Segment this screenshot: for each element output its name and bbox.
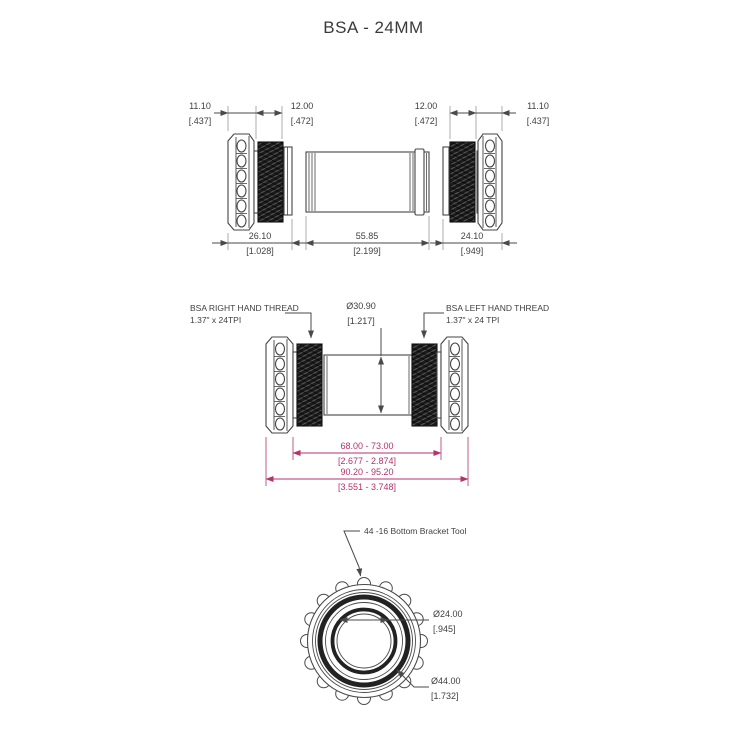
dim-mm: Ø44.00	[431, 676, 481, 686]
top-view-right-cup	[443, 134, 502, 230]
drawing-sheet: BSA - 24MM 11.10 [.437] 12.00 [.472] 12.…	[0, 0, 747, 746]
dim-mm: 26.10	[238, 231, 282, 241]
thread-label-line2: 1.37" x 24TPI	[190, 314, 330, 326]
dim-in: [1.732]	[431, 691, 481, 701]
dim-in: [2.677 - 2.874]	[322, 456, 412, 466]
dim-flange-width-right: 11.10 [.437]	[516, 101, 560, 126]
drawing-title: BSA - 24MM	[0, 18, 747, 38]
dim-mm: Ø24.00	[433, 609, 483, 619]
dim-in: [1.217]	[339, 316, 383, 326]
middle-view-assembly	[266, 337, 468, 433]
dim-in: [.945]	[433, 624, 483, 634]
dim-bore-diameter: Ø24.00 [.945]	[433, 609, 483, 634]
dim-outer-diameter: Ø44.00 [1.732]	[431, 676, 481, 701]
dim-mm: Ø30.90	[339, 301, 383, 311]
dim-sleeve-diameter: Ø30.90 [1.217]	[339, 301, 383, 326]
dim-overall-width-range: 90.20 - 95.20 [3.551 - 3.748]	[322, 467, 412, 492]
dim-in: [.472]	[280, 116, 324, 126]
dim-mm: 11.10	[178, 101, 222, 111]
dim-right-cup-length: 24.10 [.949]	[450, 231, 494, 256]
dim-in: [2.199]	[345, 246, 389, 256]
dim-in: [.437]	[516, 116, 560, 126]
dim-in: [1.028]	[238, 246, 282, 256]
dim-mm: 90.20 - 95.20	[322, 467, 412, 477]
dim-mm: 24.10	[450, 231, 494, 241]
dim-mm: 12.00	[280, 101, 324, 111]
dim-in: [.437]	[178, 116, 222, 126]
dim-sleeve-length: 55.85 [2.199]	[345, 231, 389, 256]
bottom-bracket-tool-label: 44 -16 Bottom Bracket Tool	[364, 525, 514, 537]
dim-in: [3.551 - 3.748]	[322, 482, 412, 492]
technical-drawing	[0, 0, 747, 746]
thread-label-line1: BSA RIGHT HAND THREAD	[190, 302, 330, 314]
right-hand-thread-label: BSA RIGHT HAND THREAD 1.37" x 24TPI	[190, 302, 330, 326]
dim-mm: 68.00 - 73.00	[322, 441, 412, 451]
dim-in: [.472]	[404, 116, 448, 126]
thread-label-line2: 1.37" x 24 TPI	[446, 314, 586, 326]
bottom-view-circles	[301, 578, 428, 705]
dim-mm: 55.85	[345, 231, 389, 241]
dim-flange-width-left: 11.10 [.437]	[178, 101, 222, 126]
dim-mm: 12.00	[404, 101, 448, 111]
dim-thread-width-left: 12.00 [.472]	[280, 101, 324, 126]
dim-left-cup-length: 26.10 [1.028]	[238, 231, 282, 256]
dim-thread-width-right: 12.00 [.472]	[404, 101, 448, 126]
thread-label-line1: BSA LEFT HAND THREAD	[446, 302, 586, 314]
left-hand-thread-label: BSA LEFT HAND THREAD 1.37" x 24 TPI	[446, 302, 586, 326]
top-view-sleeve	[306, 149, 429, 215]
dim-in: [.949]	[450, 246, 494, 256]
dim-shell-width-range: 68.00 - 73.00 [2.677 - 2.874]	[322, 441, 412, 466]
dim-mm: 11.10	[516, 101, 560, 111]
top-view-left-cup	[228, 134, 292, 230]
